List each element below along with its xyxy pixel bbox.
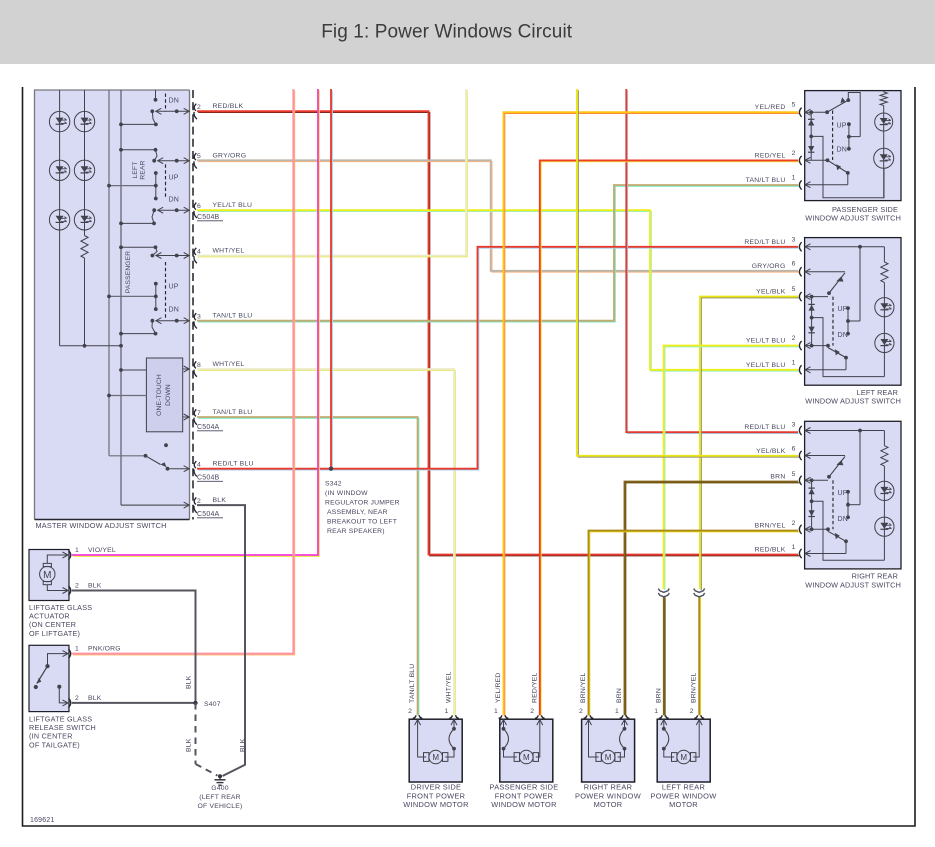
svg-text:REGULATOR JUMPER: REGULATOR JUMPER <box>325 500 400 507</box>
svg-text:OF LIFTGATE): OF LIFTGATE) <box>29 629 80 638</box>
svg-text:UP: UP <box>837 123 847 130</box>
svg-text:(LEFT REAR: (LEFT REAR <box>199 794 241 801</box>
svg-text:M: M <box>432 753 439 762</box>
svg-text:DN: DN <box>169 98 180 105</box>
svg-text:BLK: BLK <box>88 695 102 702</box>
svg-text:POWER WINDOW: POWER WINDOW <box>575 791 641 800</box>
svg-text:PASSENGER: PASSENGER <box>125 251 132 293</box>
svg-text:FRONT POWER: FRONT POWER <box>495 791 554 800</box>
svg-text:1: 1 <box>445 708 449 715</box>
svg-text:WHT/YEL: WHT/YEL <box>446 671 453 703</box>
svg-text:169621: 169621 <box>30 817 55 824</box>
svg-text:1: 1 <box>792 359 796 366</box>
svg-text:RIGHT REAR: RIGHT REAR <box>852 572 898 581</box>
svg-text:2: 2 <box>197 498 201 505</box>
svg-text:1: 1 <box>75 547 79 554</box>
svg-text:WINDOW MOTOR: WINDOW MOTOR <box>491 800 556 809</box>
svg-text:POWER WINDOW: POWER WINDOW <box>650 791 716 800</box>
svg-text:2: 2 <box>579 708 583 715</box>
svg-text:M: M <box>43 570 51 581</box>
svg-text:ASSEMBLY, NEAR: ASSEMBLY, NEAR <box>327 509 388 516</box>
svg-text:WHT/YEL: WHT/YEL <box>213 248 245 255</box>
svg-text:BRN: BRN <box>655 688 662 703</box>
svg-text:RED/YEL: RED/YEL <box>755 152 786 159</box>
svg-text:VIO/YEL: VIO/YEL <box>88 547 116 554</box>
svg-text:BRN/YEL: BRN/YEL <box>691 672 698 703</box>
svg-text:WINDOW MOTOR: WINDOW MOTOR <box>403 800 468 809</box>
svg-text:BLK: BLK <box>240 738 247 752</box>
svg-text:5: 5 <box>792 286 796 293</box>
svg-text:BLK: BLK <box>213 497 227 504</box>
svg-text:LEFT REAR: LEFT REAR <box>857 388 898 397</box>
svg-text:6: 6 <box>792 260 796 267</box>
svg-text:RED/LT BLU: RED/LT BLU <box>213 461 254 468</box>
svg-text:5: 5 <box>792 102 796 109</box>
svg-text:RED/BLK: RED/BLK <box>755 547 786 554</box>
svg-text:2: 2 <box>75 695 79 702</box>
svg-text:YEL/LT BLU: YEL/LT BLU <box>746 338 786 345</box>
svg-text:PASSENGER SIDE: PASSENGER SIDE <box>490 783 559 792</box>
svg-text:LEFT: LEFT <box>132 162 139 179</box>
svg-text:(IN WINDOW: (IN WINDOW <box>325 490 368 497</box>
svg-text:8: 8 <box>197 362 201 369</box>
svg-text:M: M <box>680 753 687 762</box>
svg-text:2: 2 <box>197 104 201 111</box>
svg-text:DN: DN <box>837 147 848 154</box>
svg-text:5: 5 <box>792 471 796 478</box>
svg-text:2: 2 <box>792 520 796 527</box>
svg-text:3: 3 <box>792 236 796 243</box>
svg-text:TAN/LT BLU: TAN/LT BLU <box>213 409 253 416</box>
svg-text:BLK: BLK <box>186 738 193 752</box>
svg-text:LEFT REAR: LEFT REAR <box>662 783 705 792</box>
svg-text:BRN: BRN <box>770 474 785 481</box>
svg-text:1: 1 <box>792 175 796 182</box>
svg-text:RED/BLK: RED/BLK <box>213 103 244 110</box>
svg-text:DOWN: DOWN <box>165 384 172 406</box>
svg-text:S342: S342 <box>325 481 342 488</box>
svg-text:7: 7 <box>197 410 201 417</box>
svg-text:S407: S407 <box>204 701 221 708</box>
svg-text:2: 2 <box>792 335 796 342</box>
svg-text:YEL/RED: YEL/RED <box>755 104 786 111</box>
svg-text:BRN/YEL: BRN/YEL <box>755 523 786 530</box>
svg-text:FRONT POWER: FRONT POWER <box>407 791 466 800</box>
svg-text:OF TAILGATE): OF TAILGATE) <box>29 740 80 749</box>
svg-text:OF VEHICLE): OF VEHICLE) <box>198 803 243 810</box>
svg-text:1: 1 <box>494 708 498 715</box>
svg-text:GRY/ORG: GRY/ORG <box>752 263 786 270</box>
svg-text:2: 2 <box>530 708 534 715</box>
svg-text:BRN/YEL: BRN/YEL <box>580 672 587 703</box>
svg-text:WINDOW ADJUST SWITCH: WINDOW ADJUST SWITCH <box>805 397 901 406</box>
svg-text:M: M <box>605 753 612 762</box>
svg-text:3: 3 <box>197 314 201 321</box>
svg-text:1: 1 <box>654 708 658 715</box>
svg-text:5: 5 <box>197 153 201 160</box>
svg-text:TAN/LT BLU: TAN/LT BLU <box>746 177 786 184</box>
svg-text:RED/LT BLU: RED/LT BLU <box>744 239 785 246</box>
svg-text:YEL/LT BLU: YEL/LT BLU <box>213 202 253 209</box>
svg-text:TAN/LT BLU: TAN/LT BLU <box>409 664 416 703</box>
svg-text:WINDOW ADJUST SWITCH: WINDOW ADJUST SWITCH <box>805 580 901 589</box>
svg-text:BREAKOUT TO LEFT: BREAKOUT TO LEFT <box>327 519 397 526</box>
svg-text:M: M <box>523 753 530 762</box>
svg-text:6: 6 <box>197 203 201 210</box>
svg-text:UP: UP <box>169 284 179 291</box>
svg-text:MOTOR: MOTOR <box>594 800 623 809</box>
svg-text:PNK/ORG: PNK/ORG <box>88 646 121 653</box>
svg-text:DN: DN <box>169 197 180 204</box>
svg-text:2: 2 <box>408 708 412 715</box>
svg-text:TAN/LT BLU: TAN/LT BLU <box>213 313 253 320</box>
svg-text:BLK: BLK <box>186 675 193 689</box>
svg-text:2: 2 <box>792 150 796 157</box>
svg-text:1: 1 <box>792 544 796 551</box>
svg-text:4: 4 <box>197 248 201 255</box>
svg-text:6: 6 <box>792 445 796 452</box>
svg-text:C504B: C504B <box>197 214 220 221</box>
svg-text:UP: UP <box>169 175 179 182</box>
svg-text:YEL/BLK: YEL/BLK <box>756 289 786 296</box>
svg-text:2: 2 <box>75 583 79 590</box>
svg-text:WINDOW ADJUST SWITCH: WINDOW ADJUST SWITCH <box>805 213 901 222</box>
svg-text:GRY/ORG: GRY/ORG <box>213 152 247 159</box>
svg-text:REAR: REAR <box>140 160 147 179</box>
svg-text:MASTER WINDOW ADJUST SWITCH: MASTER WINDOW ADJUST SWITCH <box>36 521 167 530</box>
svg-text:YEL/RED: YEL/RED <box>495 673 502 704</box>
svg-text:G400: G400 <box>211 785 228 792</box>
svg-text:WHT/YEL: WHT/YEL <box>213 361 245 368</box>
svg-text:RED/YEL: RED/YEL <box>531 672 538 703</box>
svg-text:UP: UP <box>838 306 848 313</box>
svg-text:YEL/BLK: YEL/BLK <box>756 448 786 455</box>
svg-text:C504A: C504A <box>197 424 220 431</box>
svg-text:DN: DN <box>169 307 180 314</box>
svg-text:1: 1 <box>75 646 79 653</box>
svg-text:BRN: BRN <box>616 688 623 703</box>
svg-text:RED/LT BLU: RED/LT BLU <box>744 424 785 431</box>
svg-text:C504B: C504B <box>197 475 220 482</box>
svg-text:Fig 1: Power Windows Circuit: Fig 1: Power Windows Circuit <box>321 22 573 43</box>
svg-text:1: 1 <box>615 708 619 715</box>
svg-text:ONE-TOUCH: ONE-TOUCH <box>156 374 163 416</box>
svg-text:DRIVER SIDE: DRIVER SIDE <box>411 783 462 792</box>
svg-text:MOTOR: MOTOR <box>669 800 698 809</box>
svg-text:REAR SPEAKER): REAR SPEAKER) <box>327 528 385 535</box>
svg-text:2: 2 <box>690 708 694 715</box>
svg-text:UP: UP <box>838 490 848 497</box>
svg-text:C504A: C504A <box>197 511 220 518</box>
svg-text:RIGHT REAR: RIGHT REAR <box>584 783 632 792</box>
svg-text:3: 3 <box>792 422 796 429</box>
svg-text:YEL/LT BLU: YEL/LT BLU <box>746 362 786 369</box>
svg-text:4: 4 <box>197 462 201 469</box>
svg-text:BLK: BLK <box>88 583 102 590</box>
